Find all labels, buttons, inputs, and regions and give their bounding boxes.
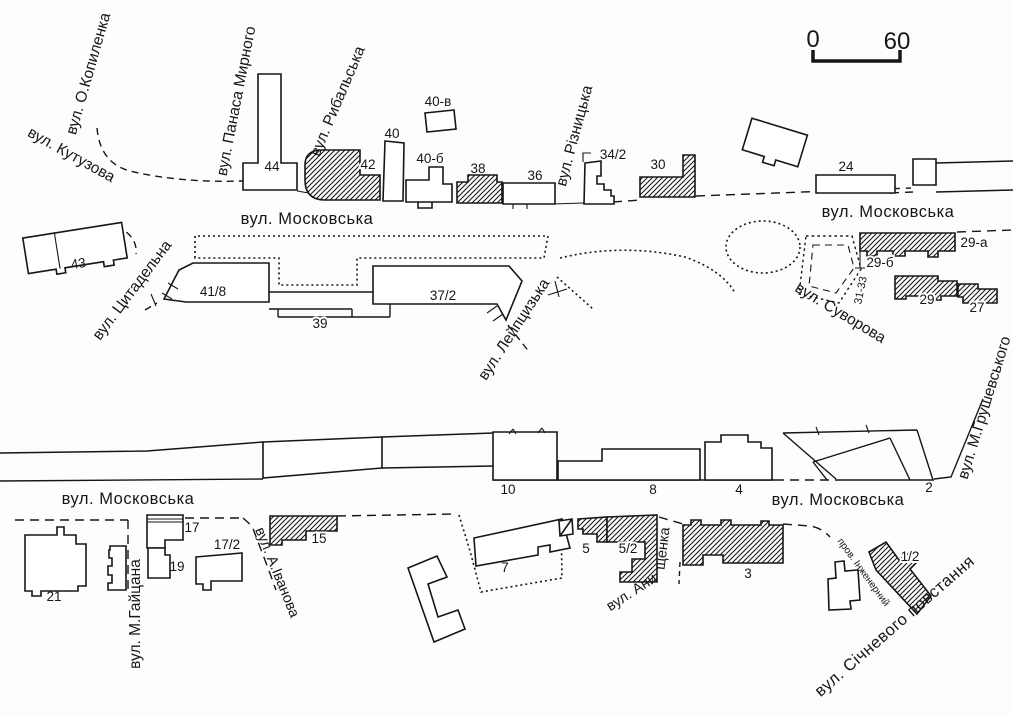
building-10-label: 10 <box>500 482 515 497</box>
building-40b-label: 40-б <box>416 151 444 166</box>
building-4-shape <box>705 435 772 480</box>
building-40v-shape <box>425 110 456 132</box>
building-39-label: 39 <box>312 316 327 331</box>
building-34-2-shape <box>584 161 614 204</box>
building-labels: 44 42 40 40-в 40-б 38 36 34/2 30 24 43 4… <box>46 94 988 604</box>
building-1-2-label: 1/2 <box>901 549 920 564</box>
building-17-label: 17 <box>184 520 199 535</box>
building-unnumbered-top-shape <box>741 118 808 172</box>
building-8-shape <box>558 449 700 480</box>
building-30-shape <box>640 155 695 197</box>
street-line-ne-solid <box>936 161 1013 192</box>
building-43-label: 43 <box>70 255 87 272</box>
building-19-label: 19 <box>169 559 184 574</box>
city-plan-map: 0 60 вул. О.Копиленка вул. Кутузова вул.… <box>0 0 1013 715</box>
street-label-haitsana: вул. М.Гайцана <box>127 559 144 669</box>
building-2-shape <box>783 430 933 480</box>
building-haitsana-small-shape <box>108 546 126 590</box>
street-line-south-dashed-2 <box>337 514 457 516</box>
street-label-moskovska-se: вул. Московська <box>772 491 905 509</box>
building-5-label: 5 <box>582 541 590 556</box>
white-buildings <box>23 74 936 642</box>
building-40b-shape <box>406 167 452 208</box>
building-37-2-label: 37/2 <box>430 288 456 303</box>
street-label-hrushevskoho: вул. М.Грушевського <box>955 334 1013 481</box>
building-17-2-label: 17/2 <box>214 537 240 552</box>
building-39-shape <box>269 292 390 317</box>
building-29a-shape <box>860 233 955 257</box>
street-label-rybalska: вул. Рибальська <box>307 43 369 158</box>
street-label-kopylenka: вул. О.Копиленка <box>63 11 114 137</box>
building-21-shape <box>25 527 86 596</box>
building-40v-label: 40-в <box>425 94 452 109</box>
building-2-label: 2 <box>925 480 933 495</box>
street-label-panasa-myrnoho: вул. Панаса Мирного <box>214 25 260 177</box>
building-29-label: 29 <box>919 292 934 307</box>
building-27-label: 27 <box>969 300 984 315</box>
building-7-shape <box>474 519 570 566</box>
dotted-oval <box>726 221 800 273</box>
building-15-shape <box>270 516 337 545</box>
scale-bar-end: 60 <box>884 28 911 55</box>
boundary-t-marker <box>548 281 567 297</box>
building-30-label: 30 <box>650 157 665 172</box>
building-19-shape <box>148 548 170 578</box>
building-34-2-label: 34/2 <box>600 147 626 162</box>
building-31-33-label: 31-33 <box>852 275 870 305</box>
building-mid-block-shape <box>263 437 382 478</box>
street-line-mid-lower <box>0 466 493 481</box>
building-38-shape <box>457 175 502 203</box>
street-line-anyshchenka-dash <box>679 562 680 584</box>
building-42-label: 42 <box>360 157 375 172</box>
street-label-suvorova: вул. Суворова <box>792 279 889 347</box>
building-21-label: 21 <box>46 589 61 604</box>
building-24-label: 24 <box>838 159 854 174</box>
building-40-shape <box>383 141 404 201</box>
building-7-label: 7 <box>501 560 509 575</box>
building-36-label: 36 <box>527 168 542 183</box>
building-29a-label: 29-а <box>960 235 988 250</box>
building-17-shape <box>147 515 183 548</box>
scale-bar: 0 60 <box>806 26 910 61</box>
building-5-shape <box>578 517 607 542</box>
building-4-label: 4 <box>735 482 743 497</box>
building-24-shape <box>816 175 895 193</box>
building-15-label: 15 <box>311 531 326 546</box>
building-40-label: 40 <box>384 126 399 141</box>
street-labels: вул. О.Копиленка вул. Кутузова вул. Пана… <box>25 11 1013 701</box>
street-line-29a-dashed <box>957 230 1013 232</box>
building-small-near-5-shape <box>559 519 573 536</box>
building-44-label: 44 <box>264 159 280 174</box>
street-line-mid-upper <box>0 433 493 453</box>
street-label-moskovska-sw: вул. Московська <box>62 490 195 508</box>
city-map-svg: 0 60 вул. О.Копиленка вул. Кутузова вул.… <box>0 0 1013 715</box>
building-3-label: 3 <box>744 566 752 581</box>
dotted-boundary-diagonal <box>557 277 593 309</box>
building-8-label: 8 <box>649 482 657 497</box>
plot-31-33-inner <box>809 245 854 293</box>
building-29b-label: 29-б <box>866 255 894 270</box>
boundary-tick-left-wing <box>151 294 156 306</box>
street-label-moskovska-ne: вул. Московська <box>822 203 955 221</box>
dotted-boundary-curve <box>560 250 735 293</box>
building-38-label: 38 <box>470 161 485 176</box>
building-ne-square-shape <box>913 159 936 185</box>
building-c-shape <box>408 556 465 642</box>
building-17-2-shape <box>196 553 242 590</box>
building-41-8-label: 41/8 <box>200 284 226 299</box>
street-corner-riznytska <box>583 153 591 162</box>
building-10-shape <box>493 432 557 480</box>
street-label-moskovska-nw: вул. Московська <box>241 210 374 228</box>
ticks-building-2 <box>816 425 869 435</box>
scale-bar-start: 0 <box>806 26 819 53</box>
building-3-shape <box>683 520 783 565</box>
building-5-2-label: 5/2 <box>619 541 638 556</box>
building-36-shape <box>503 183 555 204</box>
